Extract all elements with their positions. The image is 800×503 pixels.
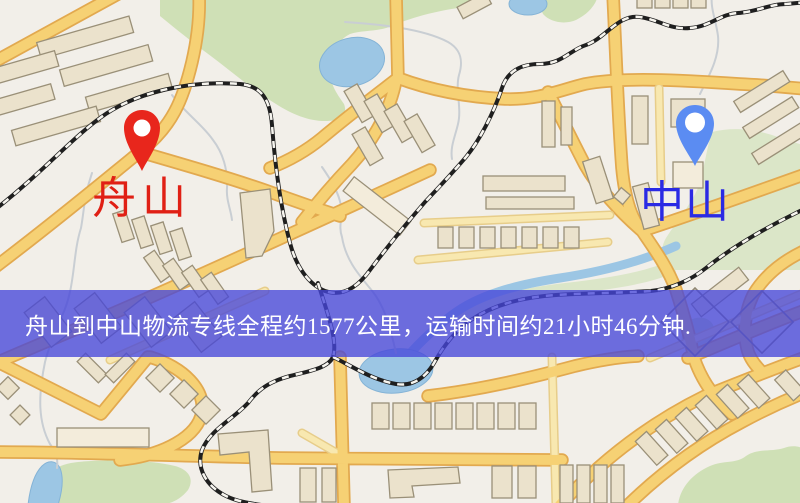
destination-pin[interactable] (670, 101, 720, 167)
route-info-text: 舟山到中山物流专线全程约1577公里，运输时间约21小时46分钟. (25, 307, 691, 341)
origin-pin[interactable] (118, 106, 166, 172)
destination-pin-hole (685, 113, 705, 133)
route-info-banner: 舟山到中山物流专线全程约1577公里，运输时间约21小时46分钟. (0, 290, 800, 357)
map: 舟山 中山 舟山到中山物流专线全程约1577公里，运输时间约21小时46分钟. (0, 0, 800, 503)
map-background (0, 0, 800, 503)
origin-pin-shape (124, 110, 160, 171)
origin-label: 舟山 (92, 177, 192, 221)
origin-pin-hole (134, 120, 151, 137)
destination-label: 中山 (640, 181, 730, 225)
